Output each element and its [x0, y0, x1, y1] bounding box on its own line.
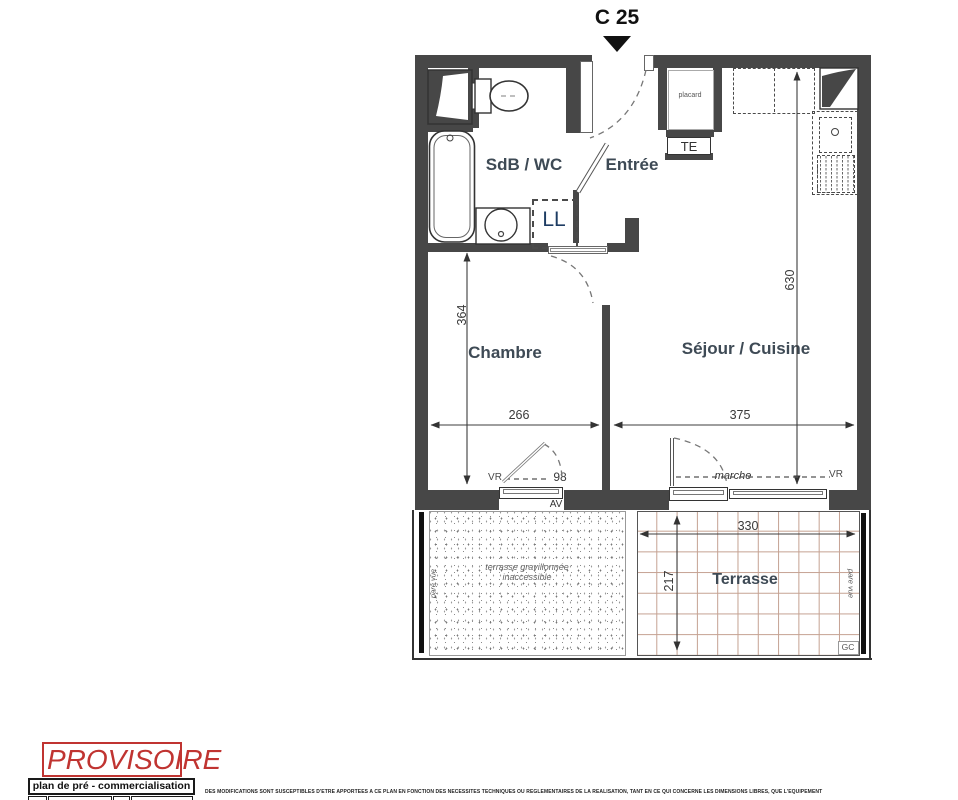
- washing-machine-label: LL: [532, 208, 576, 232]
- terrace-outline-bottom: [412, 658, 872, 660]
- pare-vue-left-label: pare vue: [429, 568, 438, 600]
- dim-266: 266: [489, 408, 549, 422]
- dim-330: 330: [718, 519, 778, 533]
- entrance-marker-icon: [603, 36, 631, 52]
- dim-364: 364: [455, 300, 469, 330]
- table-cell: [28, 796, 47, 800]
- placard-label: placard: [667, 92, 713, 99]
- window-chambre-glass: [503, 489, 559, 494]
- pare-vue-right-bar: [861, 513, 866, 654]
- door-leaves: [503, 144, 672, 486]
- entree-corner-wall-h: [607, 243, 639, 252]
- room-label-sejour: Séjour / Cuisine: [666, 339, 826, 359]
- kitchen-drainer: [817, 155, 855, 193]
- room-label-chambre: Chambre: [455, 343, 555, 363]
- placard-bottom-bar: [666, 130, 714, 137]
- unit-label: C 25: [587, 6, 647, 30]
- vr-sejour-label: VR: [824, 469, 848, 480]
- entrance-jamb-left: [580, 61, 593, 133]
- marche-label: marche: [703, 470, 763, 482]
- dim-98: 98: [545, 470, 575, 484]
- pare-vue-left-bar: [419, 512, 424, 653]
- partition-chambre-sejour: [602, 305, 610, 490]
- table-cell: [48, 796, 112, 800]
- gravel-label-line2: inaccessible: [447, 572, 607, 582]
- dim-375: 375: [710, 408, 770, 422]
- plan-type-box: plan de pré - commercialisation: [28, 778, 195, 795]
- bathtub-fixture: [430, 131, 475, 242]
- placard-inner: [668, 70, 714, 130]
- pare-vue-right-label: pare vue: [847, 568, 856, 600]
- window-sejour-step-glass: [733, 491, 823, 495]
- disclaimer-text: DES MODIFICATIONS SONT SUSCEPTIBLES D'ET…: [205, 789, 956, 795]
- placard-stub-left: [658, 68, 667, 130]
- entrance-jamb-right: [644, 55, 654, 71]
- kitchen-appliance-divider: [774, 68, 775, 112]
- terrace-outline-left: [412, 510, 414, 660]
- duct-left: [428, 70, 472, 124]
- kitchen-sink: [819, 117, 852, 153]
- gc-label: GC: [838, 642, 858, 652]
- duct-right: [820, 68, 858, 109]
- dim-217: 217: [662, 566, 676, 596]
- gravel-terrace-label: terrasse gravillonnée inaccessible: [447, 562, 607, 582]
- sliding-door-chambre: [548, 246, 608, 254]
- wall-right: [857, 55, 871, 510]
- terrasse-label: Terrasse: [695, 571, 795, 589]
- terrace-outline-right: [869, 510, 871, 660]
- washbasin-fixture: [476, 208, 530, 244]
- floorplan-page: C 25 placard TE LL AV pare vue: [0, 0, 958, 800]
- te-label: TE: [667, 139, 711, 154]
- placard-stub-right: [713, 68, 722, 132]
- entrance-opening: [592, 55, 646, 68]
- toilet-fixture: [455, 79, 528, 113]
- table-cell: [131, 796, 193, 800]
- room-label-entree: Entrée: [592, 155, 672, 175]
- vr-chambre-label: VR: [483, 472, 507, 483]
- av-label: AV: [544, 499, 568, 510]
- dim-630: 630: [783, 265, 797, 295]
- wall-stub-entrance: [566, 68, 581, 133]
- gravel-terrace: [429, 511, 626, 656]
- window-sejour-glass: [673, 490, 724, 495]
- table-cell: [113, 796, 130, 800]
- provisoire-stamp: PROVISOIRE: [42, 742, 182, 777]
- wall-stub-bath: [468, 68, 479, 128]
- gravel-label-line1: terrasse gravillonnée: [447, 562, 607, 572]
- duct-bath-divider: [427, 124, 473, 132]
- wall-under-bathroom: [415, 243, 548, 252]
- room-label-sdb: SdB / WC: [464, 155, 584, 175]
